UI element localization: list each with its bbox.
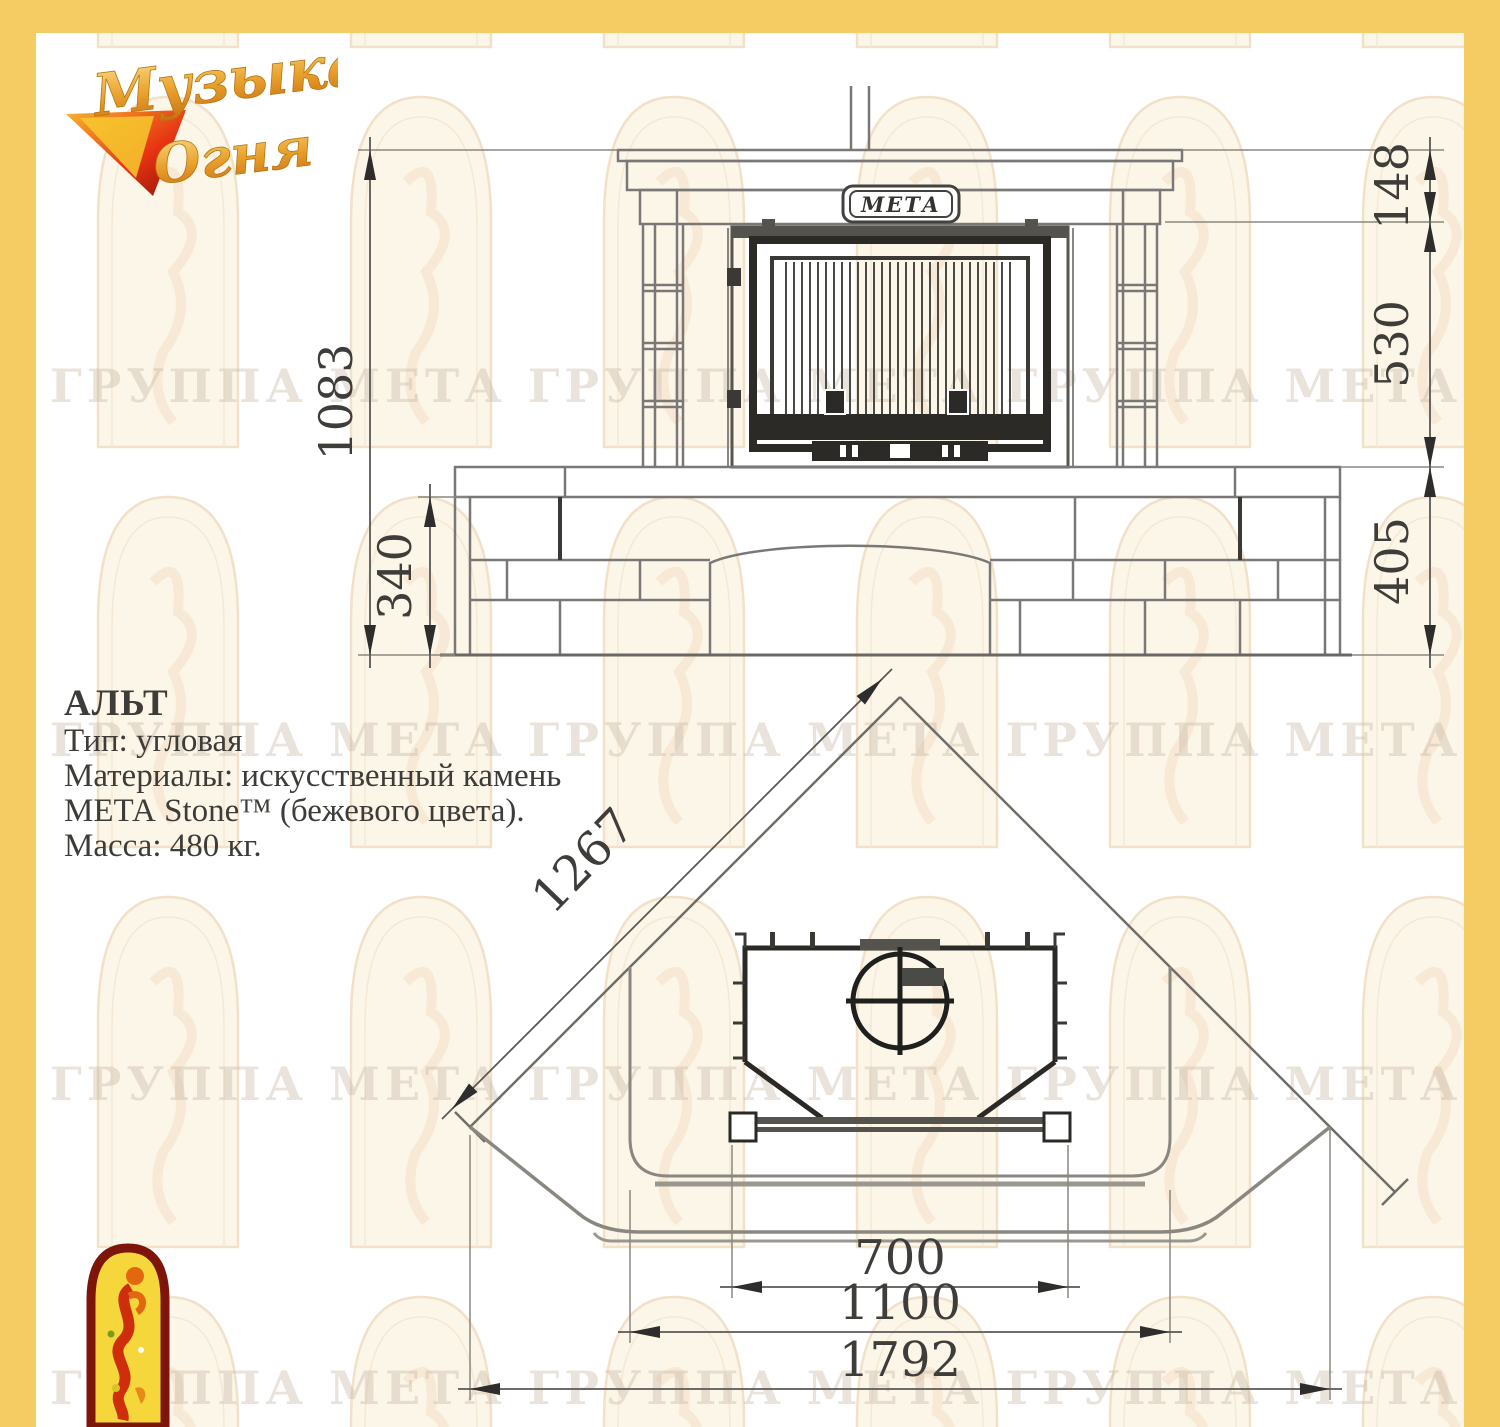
mount-tab (1025, 932, 1030, 948)
vent-grille (812, 441, 988, 461)
product-materials-2: МЕТА Stone™ (бежевого цвета). (64, 794, 561, 829)
rail-foot (1044, 1113, 1070, 1141)
dim-label-405: 405 (1365, 517, 1419, 605)
figure-head (126, 1267, 144, 1285)
frame-border-top (0, 0, 1500, 33)
product-materials: Материалы: искусственный камень (64, 759, 561, 794)
frame-border-right (1464, 33, 1500, 1427)
arch-emblem (83, 1238, 173, 1427)
dim-label-148: 148 (1365, 142, 1419, 230)
product-info: АЛЬТ Тип: угловая Материалы: искусственн… (64, 684, 561, 864)
dim-label-1083: 1083 (309, 343, 363, 460)
arch-emblem-art (83, 1238, 173, 1427)
anchor-lug (1025, 219, 1038, 228)
anchor-lug (762, 219, 775, 228)
rail-foot (730, 1113, 756, 1141)
front-rail-bar (754, 1117, 1046, 1124)
muzyka-ognya-logo: Музыка Огня (58, 36, 338, 231)
mount-tab (810, 932, 815, 948)
dim-label-1792: 1792 (839, 1332, 961, 1388)
dim-label-1100: 1100 (839, 1275, 961, 1331)
dim-label-530: 530 (1365, 300, 1419, 388)
door-bottom-rail (753, 414, 1047, 440)
product-name: АЛЬТ (64, 684, 561, 724)
dim-label-340: 340 (368, 532, 422, 620)
meta-badge-label: МЕТА (860, 192, 941, 217)
damper-handle (902, 968, 944, 986)
muzyka-ognya-logo-art: Музыка Огня (58, 36, 338, 226)
door-hinge (727, 268, 741, 286)
watermark-text-row: ГРУППА МЕТА ГРУППА МЕТА ГРУППА МЕТА ГРУП… (50, 359, 1500, 413)
frame-border-left (0, 33, 36, 1427)
mount-tab (770, 932, 775, 948)
accent-dot (138, 1347, 144, 1353)
front-rail-bar (754, 1127, 1046, 1132)
mount-tab (985, 932, 990, 948)
accent-dot (108, 1331, 115, 1338)
accent-dot (112, 1384, 120, 1392)
page: ГРУППА МЕТА ГРУППА МЕТА ГРУППА МЕТА ГРУП… (0, 0, 1500, 1427)
watermark-text-row: ГРУППА МЕТА ГРУППА МЕТА ГРУППА МЕТА ГРУП… (50, 1361, 1500, 1415)
product-mass: Масса: 480 кг. (64, 829, 561, 864)
door-hinge (727, 390, 741, 408)
product-type: Тип: угловая (64, 724, 561, 759)
meta-badge: МЕТА (843, 186, 959, 222)
